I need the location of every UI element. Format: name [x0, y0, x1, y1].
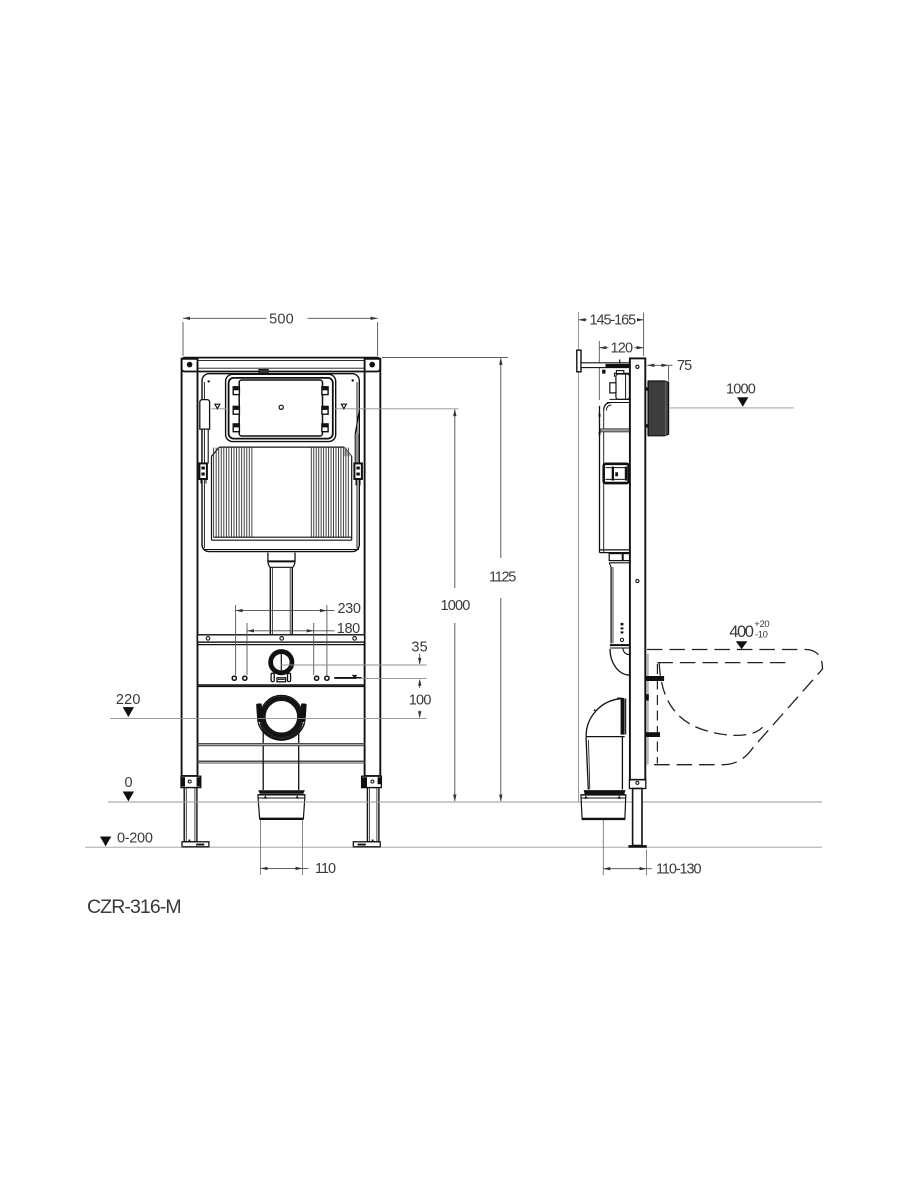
- svg-text:+20: +20: [754, 619, 769, 630]
- svg-text:35: 35: [411, 640, 428, 656]
- svg-text:230: 230: [338, 601, 361, 617]
- svg-text:180: 180: [337, 621, 360, 637]
- svg-text:400: 400: [729, 623, 754, 641]
- svg-text:110-130: 110-130: [656, 862, 701, 878]
- svg-text:120: 120: [611, 340, 634, 356]
- svg-text:0-200: 0-200: [117, 830, 153, 846]
- svg-text:CZR-316-M: CZR-316-M: [87, 896, 181, 918]
- svg-text:75: 75: [677, 358, 692, 374]
- svg-text:0: 0: [125, 775, 133, 791]
- svg-text:220: 220: [116, 692, 141, 708]
- svg-text:100: 100: [409, 693, 432, 709]
- svg-text:145-165: 145-165: [590, 312, 637, 328]
- svg-text:1125: 1125: [489, 569, 516, 585]
- svg-text:1000: 1000: [440, 598, 470, 614]
- svg-text:-10: -10: [755, 630, 768, 641]
- svg-text:500: 500: [269, 311, 294, 327]
- svg-text:110: 110: [315, 861, 336, 877]
- svg-text:1000: 1000: [726, 382, 756, 398]
